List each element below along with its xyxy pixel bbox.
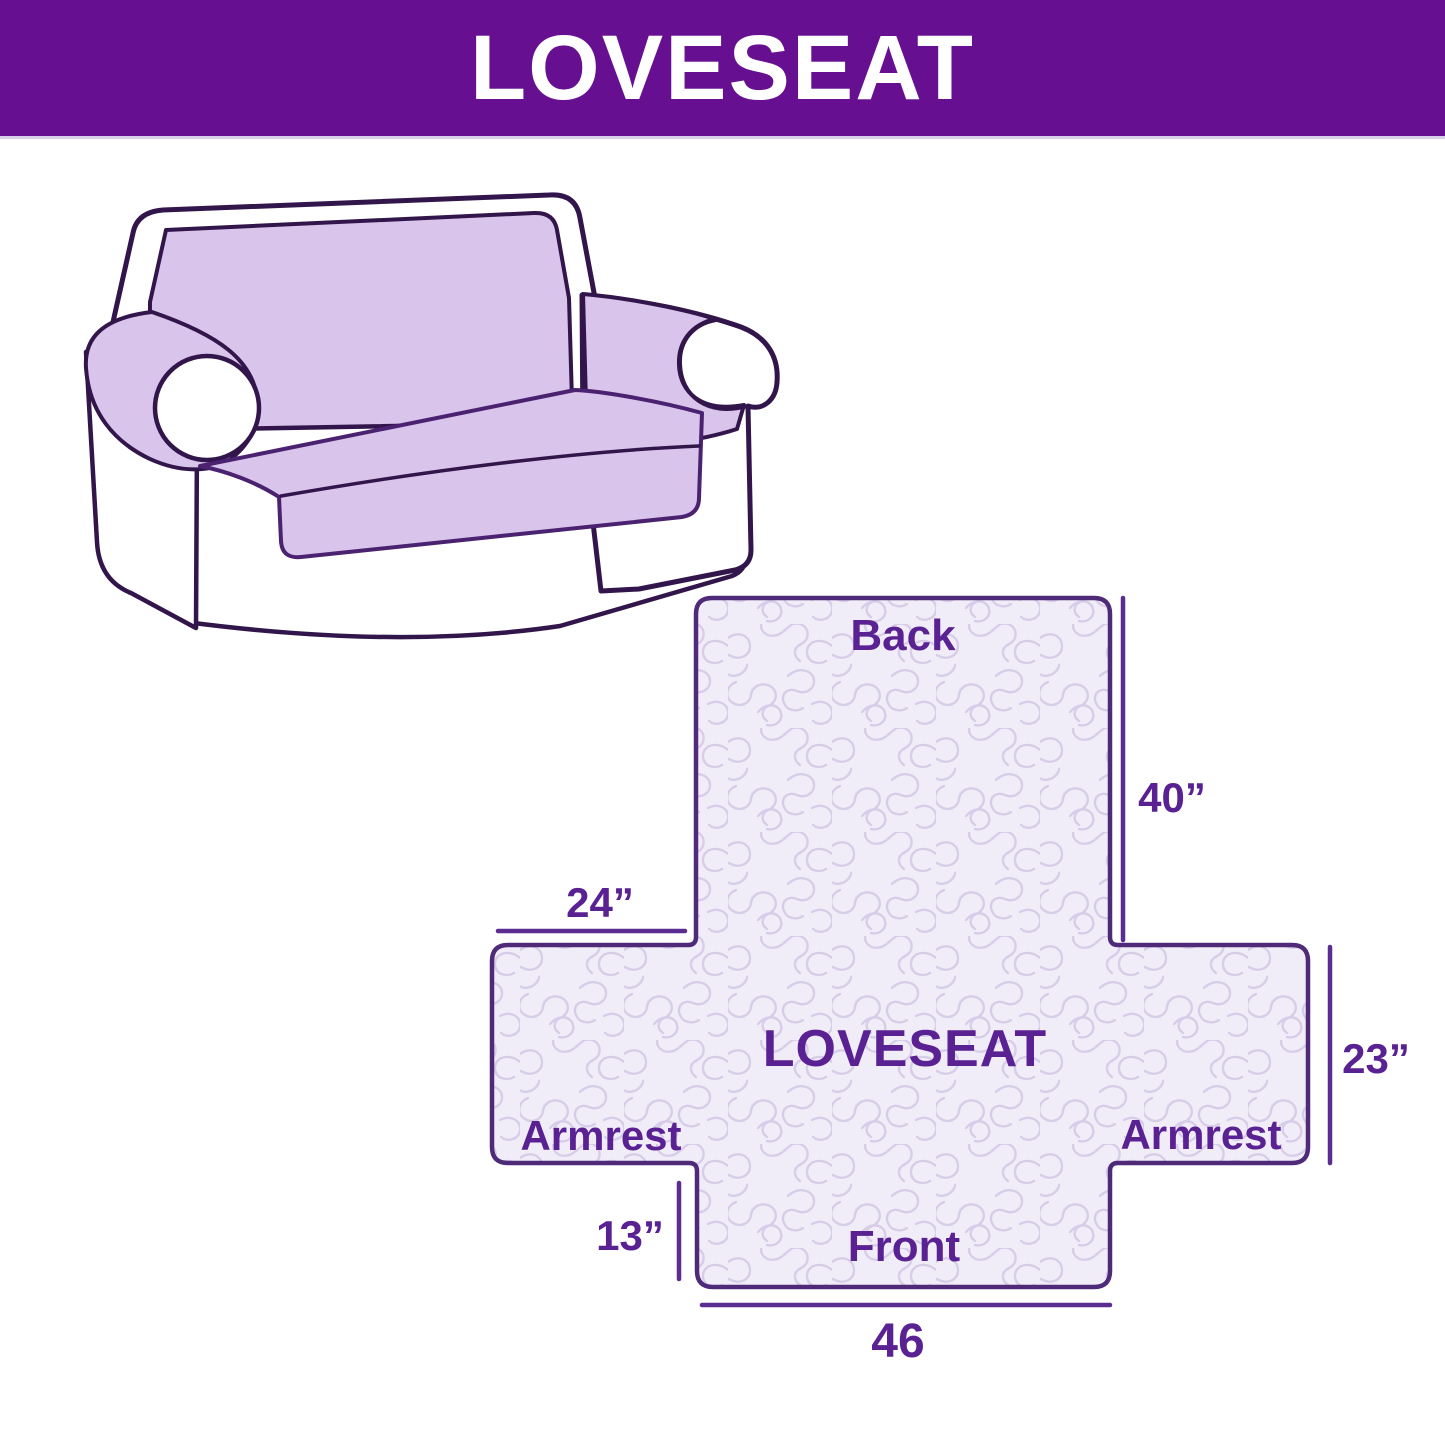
dim-armrest-top-value: 24” [566,882,634,924]
armrest-right-label: Armrest [1120,1114,1281,1156]
armrest-left-label: Armrest [520,1115,681,1157]
dim-armrest-side-value: 23” [1342,1038,1410,1080]
diagram-center-label: LOVESEAT [763,1023,1047,1075]
header-banner: LOVESEAT [0,0,1445,139]
cover-cross-shape [492,598,1308,1287]
dim-back-height-value: 40” [1138,777,1206,819]
front-section-label: Front [848,1225,960,1269]
page-title: LOVESEAT [470,22,975,114]
back-section-label: Back [850,614,955,658]
dim-front-width-value: 46 [871,1318,924,1366]
loveseat-infographic: LOVESEAT [0,0,1445,1445]
sofa-left-arm-roll [155,356,259,460]
dim-front-drop-value: 13” [596,1215,664,1257]
cover-diagram [440,560,1445,1400]
